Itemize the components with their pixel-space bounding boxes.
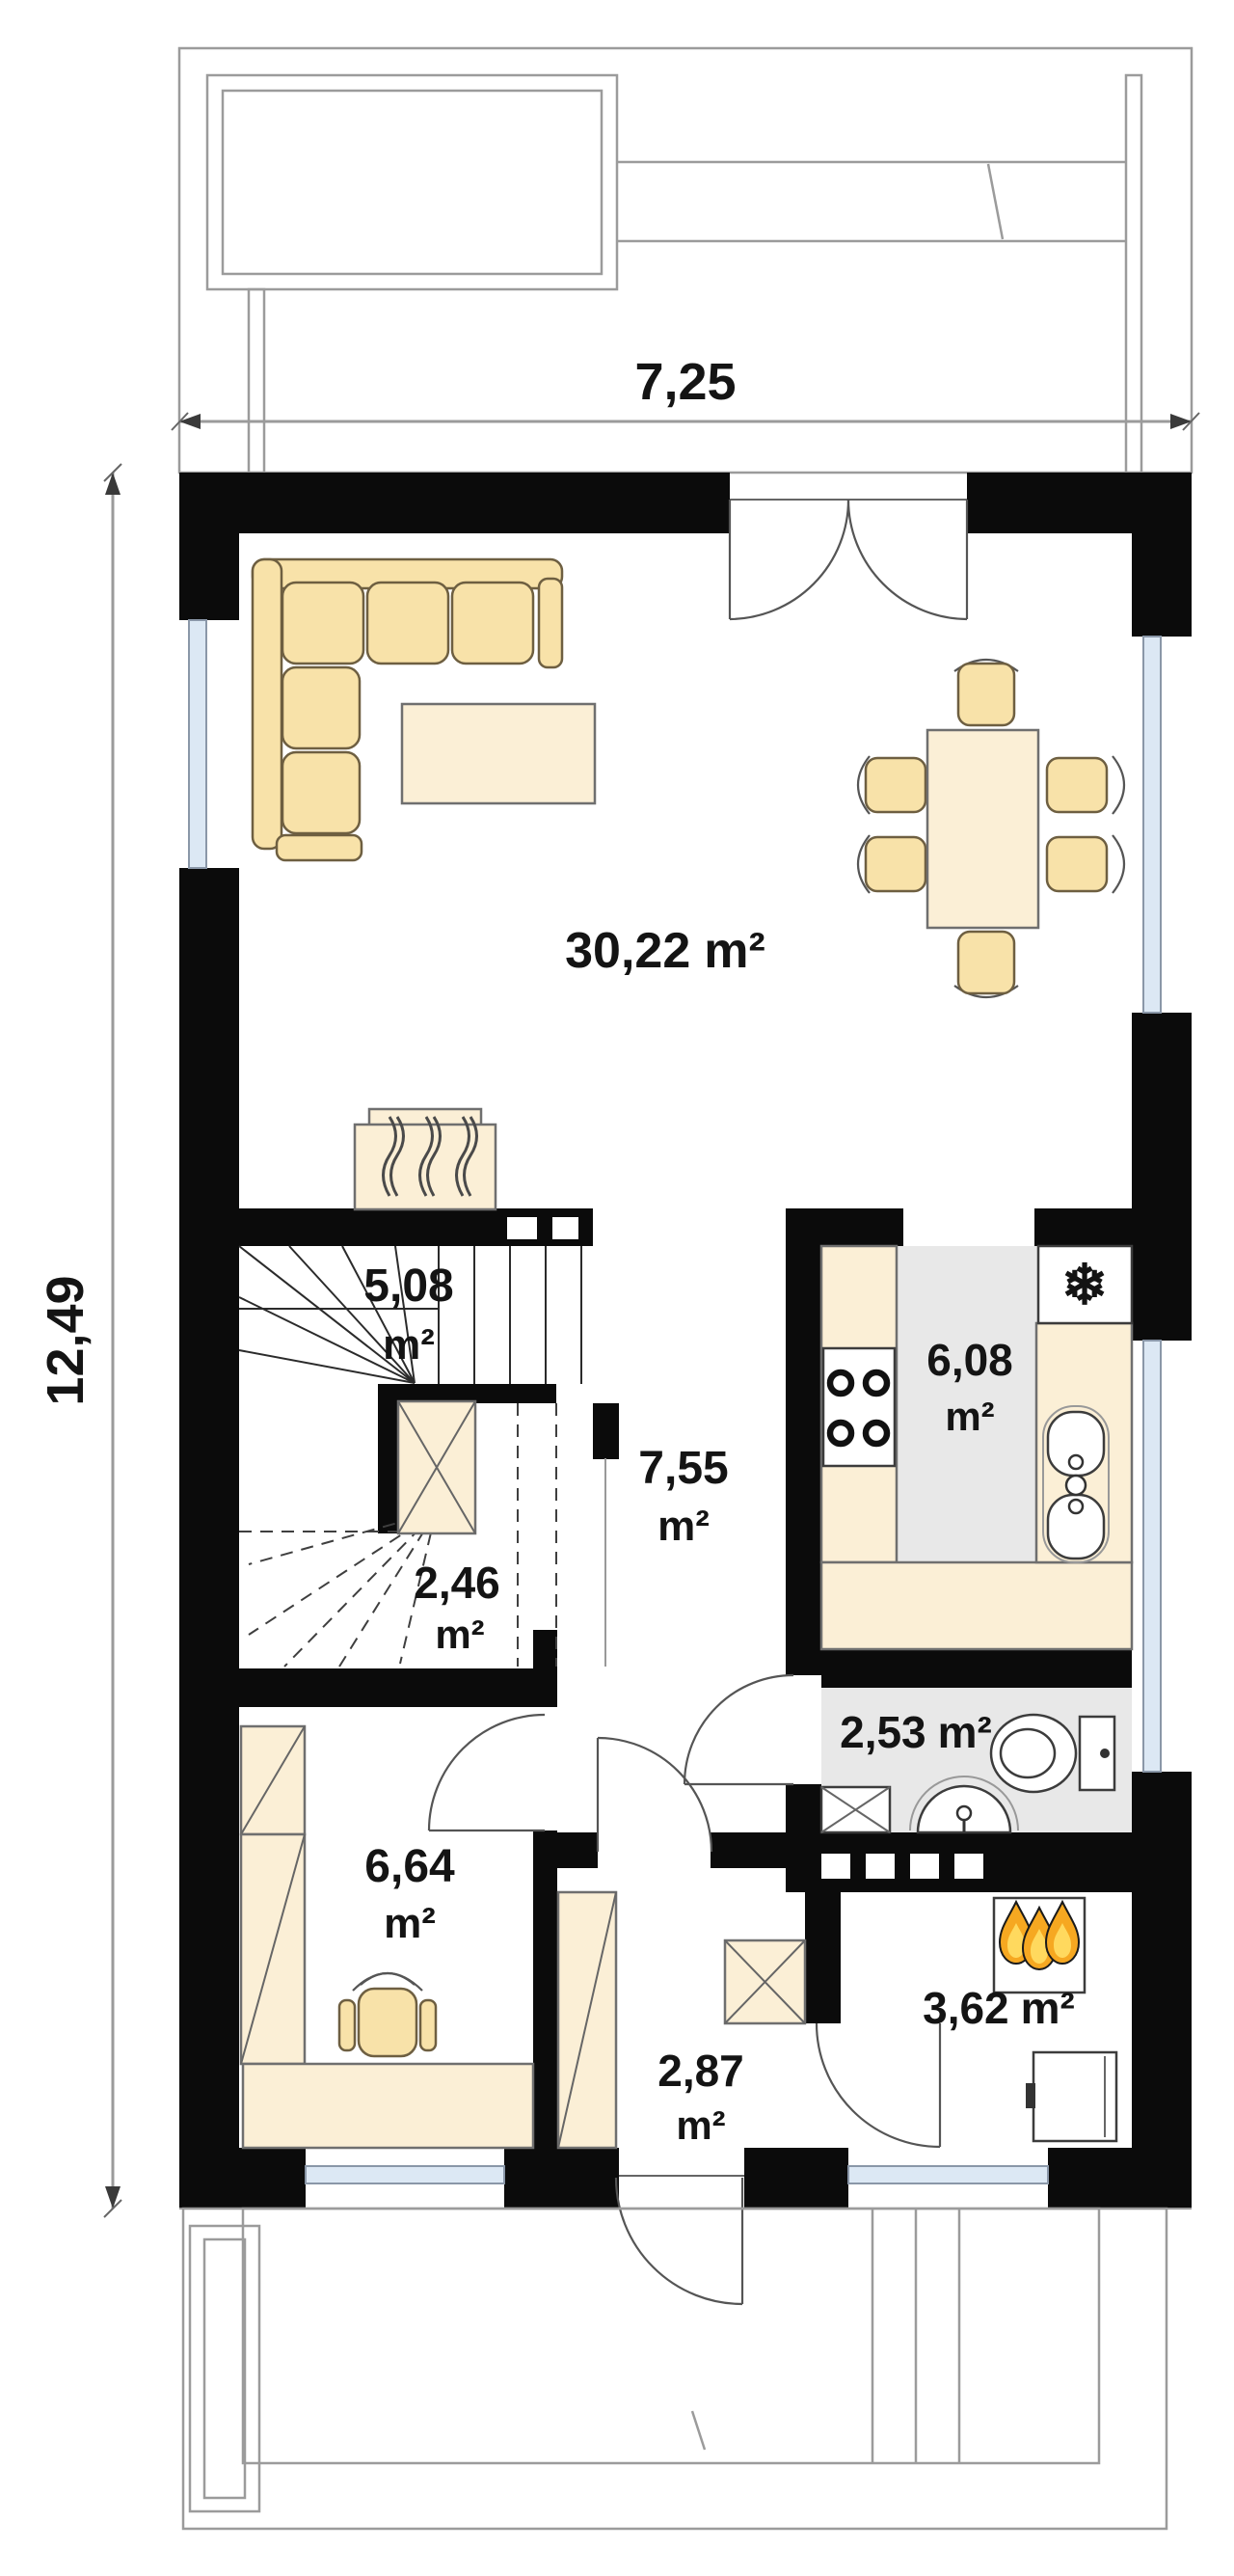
- room-label-kitchen-unit: m²: [945, 1394, 994, 1439]
- room-label-hall-unit: m²: [657, 1503, 710, 1550]
- dimension-top: 7,25: [172, 353, 1199, 430]
- room-label-entry-unit: m²: [676, 2102, 725, 2148]
- fireplace: [355, 1109, 496, 1209]
- dimension-depth-label: 12,49: [37, 1275, 94, 1405]
- wardrobe: [241, 1726, 305, 2064]
- shaft-entry: [725, 1940, 805, 2023]
- dining-set: [858, 660, 1124, 997]
- dining-chair: [1047, 837, 1107, 891]
- room-label-utility: 3,62m²: [923, 1983, 1075, 2033]
- wc-door: [684, 1675, 793, 1784]
- dimension-left: 12,49: [37, 464, 121, 2217]
- hall-entry-door: [598, 1738, 711, 1852]
- snowflake-icon: ❄: [1061, 1254, 1109, 1316]
- dining-chair: [958, 664, 1014, 725]
- room-label-kitchen-value: 6,08: [926, 1335, 1013, 1385]
- dining-chair: [1047, 758, 1107, 812]
- coffee-table: [402, 704, 595, 803]
- dining-table: [927, 730, 1038, 928]
- room-label-office-value: 6,64: [364, 1841, 455, 1892]
- office-chair: [339, 1973, 436, 2056]
- dimension-width-label: 7,25: [634, 353, 736, 411]
- window-kitchen-right: [1143, 1341, 1161, 1772]
- toilet-icon: [991, 1715, 1114, 1792]
- dining-chair: [866, 758, 925, 812]
- room-label-stairs-value: 5,08: [363, 1261, 453, 1312]
- dining-chair: [958, 932, 1014, 993]
- entry-wardrobe: [558, 1892, 616, 2148]
- porch-outline: [179, 2209, 1192, 2529]
- terrace-french-door: [730, 500, 967, 619]
- room-label-closet-unit: m²: [435, 1612, 484, 1657]
- room-label-entry-value: 2,87: [657, 2046, 744, 2096]
- shaft-wc: [821, 1787, 890, 1832]
- washing-machine-icon: [1026, 2052, 1116, 2141]
- stove-icon: [823, 1348, 895, 1466]
- room-label-hall-value: 7,55: [638, 1443, 728, 1494]
- floor-plan-drawing: 7,25 12,49: [0, 0, 1234, 2576]
- window-office-bottom: [306, 2166, 504, 2183]
- boiler-icon: [994, 1898, 1085, 1993]
- room-label-wc: 2,53m²: [840, 1707, 992, 1757]
- room-label-living: 30,22m²: [565, 923, 765, 979]
- room-label-office-unit: m²: [384, 1900, 436, 1947]
- room-label-closet-value: 2,46: [414, 1558, 500, 1608]
- office-door: [429, 1715, 545, 1830]
- dining-chair: [866, 837, 925, 891]
- room-label-stairs-unit: m²: [383, 1321, 435, 1369]
- utility-door: [817, 2023, 940, 2147]
- fridge-icon: ❄: [1038, 1246, 1132, 1323]
- floor-plan-page: 7,25 12,49: [0, 0, 1234, 2576]
- desk: [243, 2064, 533, 2148]
- window-dining-right: [1143, 637, 1161, 1013]
- window-utility-bottom: [848, 2166, 1048, 2183]
- window-living-left: [189, 620, 206, 868]
- front-door: [616, 2176, 744, 2304]
- shaft-stairs: [398, 1401, 475, 1533]
